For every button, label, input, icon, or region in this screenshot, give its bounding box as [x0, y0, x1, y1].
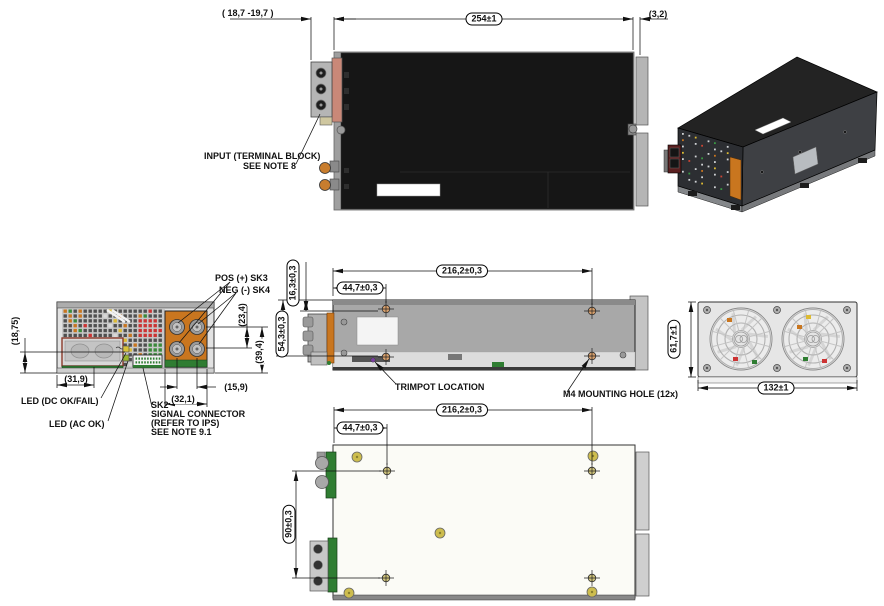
bottom-busbar-block — [316, 452, 337, 498]
dim-bottom-hole-front-balloon: 44,7±0,3 — [337, 422, 384, 435]
dim-stud-row-height: (39,4) — [254, 339, 264, 365]
side-screw — [337, 126, 345, 134]
rear-view — [698, 302, 857, 383]
dim-side-hole-top-balloon: 16,3±0,3 — [287, 260, 300, 307]
dim-window-width: (31,9) — [64, 374, 88, 384]
label-sk2-4: SEE NOTE 9.1 — [151, 427, 212, 437]
input-window — [62, 338, 123, 370]
label-trimpot: TRIMPOT LOCATION — [395, 382, 484, 392]
side-terminal-block — [303, 313, 334, 365]
bottom-input-block — [310, 538, 337, 592]
dim-terminal-offset: ( 18,7 -19,7 ) — [222, 8, 274, 18]
dim-body-length-balloon: 254±1 — [466, 13, 503, 26]
led-dc-ok — [123, 346, 129, 352]
dim-led-height: (18,75) — [10, 317, 20, 346]
busbar-block — [165, 311, 207, 367]
dim-rear-height-balloon: 61,7±1 — [668, 319, 681, 358]
led-ac-ok — [123, 355, 129, 361]
fan-left — [710, 308, 772, 370]
iso-terminal-block — [664, 145, 681, 173]
dim-rear-offset: (3,2) — [649, 9, 668, 19]
outline-drawing-canvas: ( 18,7 -19,7 ) 254±1 (3,2) INPUT (TERMIN… — [0, 0, 884, 606]
label-led-dc: LED (DC OK/FAIL) — [21, 396, 99, 406]
iso-busbar — [730, 157, 741, 200]
dim-side-hole-low-balloon: 54,3±0,3 — [276, 311, 289, 358]
isometric-view — [664, 57, 877, 212]
terminal-block-backing — [332, 58, 342, 122]
side-label-cutout — [357, 317, 398, 345]
dim-rear-width-balloon: 132±1 — [758, 382, 795, 395]
label-input-terminal-2: SEE NOTE 8 — [204, 161, 296, 171]
top-view — [311, 52, 648, 210]
bottom-view — [310, 445, 649, 600]
label-pos-sk3: POS (+) SK3 — [215, 273, 268, 283]
side-view — [303, 296, 648, 370]
dim-busbar-width: (32,1) — [170, 394, 196, 404]
label-input-terminal-1: INPUT (TERMINAL BLOCK) — [204, 151, 296, 161]
dim-bottom-hole-pitch-balloon: 90±0,3 — [283, 504, 296, 543]
dim-side-hole-front-balloon: 44,7±0,3 — [337, 282, 384, 295]
dim-stud-row-pitch: (23,4) — [237, 303, 247, 327]
product-label — [377, 184, 440, 196]
trimpot — [371, 358, 375, 362]
dim-bottom-hole-span-balloon: 216,2±0,3 — [436, 404, 488, 417]
drawing-linework — [0, 0, 884, 606]
dim-stud-col-pitch: (15,9) — [224, 382, 248, 392]
label-m4-hole: M4 MOUNTING HOLE (12x) — [563, 389, 678, 399]
label-led-ac: LED (AC OK) — [49, 419, 105, 429]
front-view — [57, 302, 214, 373]
sk2-connector — [133, 355, 162, 368]
fan-right — [782, 308, 844, 370]
label-neg-sk4: NEG (-) SK4 — [219, 285, 270, 295]
dim-side-hole-span-balloon: 216,2±0,3 — [436, 265, 488, 278]
terminal-screws — [316, 68, 326, 110]
